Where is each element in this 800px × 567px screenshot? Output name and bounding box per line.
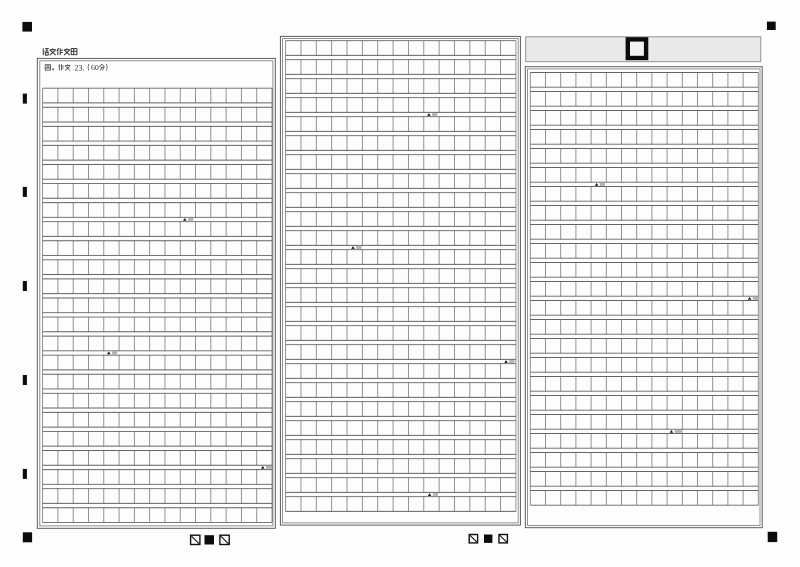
svg-text:800: 800 (600, 183, 606, 187)
svg-text:23.: 23. (74, 63, 84, 72)
svg-text:700: 700 (433, 493, 439, 497)
svg-text:900: 900 (753, 297, 759, 301)
svg-text:100: 100 (188, 218, 194, 222)
svg-text:600: 600 (509, 360, 515, 364)
svg-text:60: 60 (91, 63, 99, 72)
svg-text:300: 300 (266, 466, 272, 470)
svg-text:1000: 1000 (675, 430, 682, 434)
svg-text:500: 500 (356, 246, 362, 250)
svg-text:200: 200 (112, 351, 118, 355)
svg-text:400: 400 (432, 113, 438, 117)
